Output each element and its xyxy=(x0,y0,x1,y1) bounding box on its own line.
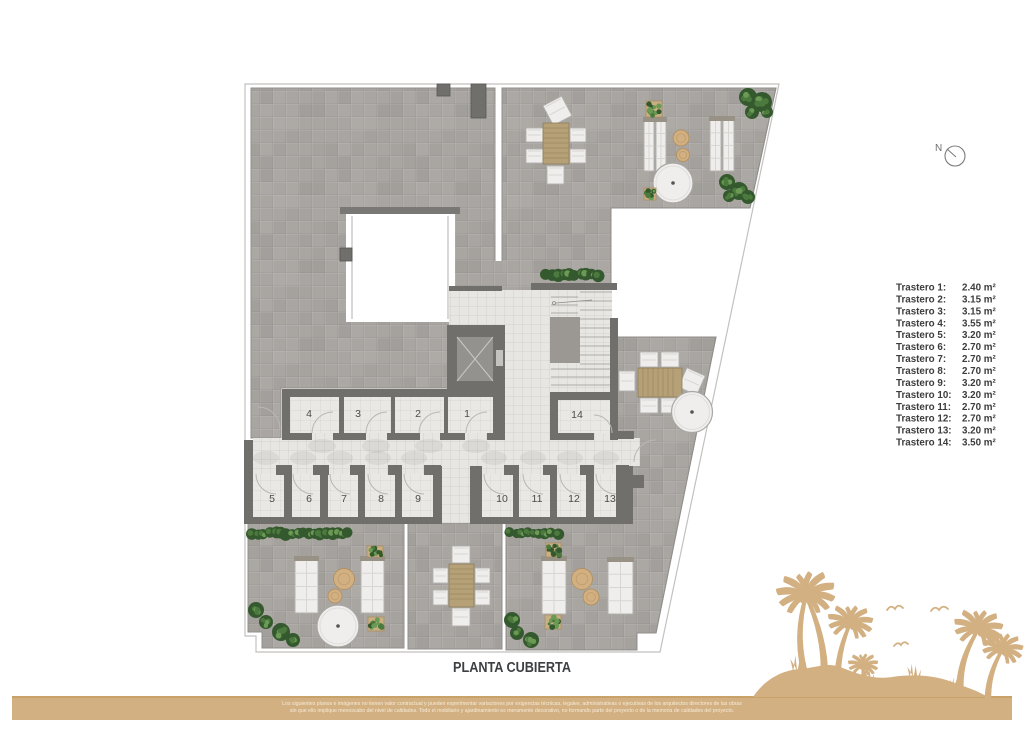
svg-text:PLANTA CUBIERTA: PLANTA CUBIERTA xyxy=(453,660,571,676)
svg-text:Trastero 13:: Trastero 13: xyxy=(896,426,952,437)
svg-text:2.40 m²: 2.40 m² xyxy=(962,283,997,294)
svg-text:Trastero 4:: Trastero 4: xyxy=(896,318,946,329)
svg-text:7: 7 xyxy=(341,493,347,505)
svg-text:3.15 m²: 3.15 m² xyxy=(962,294,997,305)
svg-text:Trastero 14:: Trastero 14: xyxy=(896,438,952,449)
svg-text:sin que ello implique menoscab: sin que ello implique menoscabo del nive… xyxy=(290,708,734,714)
svg-text:10: 10 xyxy=(496,493,508,505)
svg-text:9: 9 xyxy=(415,493,421,505)
svg-text:13: 13 xyxy=(604,493,616,505)
svg-text:3.20 m²: 3.20 m² xyxy=(962,390,997,401)
svg-text:3: 3 xyxy=(355,408,361,420)
svg-text:14: 14 xyxy=(571,409,583,421)
svg-text:Trastero 10:: Trastero 10: xyxy=(896,390,952,401)
svg-text:2.70 m²: 2.70 m² xyxy=(962,402,997,413)
svg-text:3.20 m²: 3.20 m² xyxy=(962,426,997,437)
svg-text:Trastero 2:: Trastero 2: xyxy=(896,294,946,305)
svg-text:4: 4 xyxy=(306,408,312,420)
svg-text:N: N xyxy=(935,143,942,154)
svg-text:11: 11 xyxy=(532,493,543,505)
svg-text:Trastero 7:: Trastero 7: xyxy=(896,354,946,365)
svg-text:2: 2 xyxy=(415,408,421,420)
svg-text:6: 6 xyxy=(306,493,312,505)
svg-text:Trastero 6:: Trastero 6: xyxy=(896,342,946,353)
svg-text:Trastero 1:: Trastero 1: xyxy=(896,283,946,294)
svg-text:1: 1 xyxy=(464,408,470,420)
svg-text:2.70 m²: 2.70 m² xyxy=(962,366,997,377)
svg-text:Los siguientes planos e imágen: Los siguientes planos e imágenes no tien… xyxy=(282,701,742,707)
svg-text:Trastero 12:: Trastero 12: xyxy=(896,414,952,425)
svg-text:Trastero 8:: Trastero 8: xyxy=(896,366,946,377)
svg-text:Trastero 5:: Trastero 5: xyxy=(896,330,946,341)
svg-text:12: 12 xyxy=(568,493,580,505)
svg-text:2.70 m²: 2.70 m² xyxy=(962,342,997,353)
svg-text:3.55 m²: 3.55 m² xyxy=(962,318,997,329)
svg-text:2.70 m²: 2.70 m² xyxy=(962,414,997,425)
svg-text:3.15 m²: 3.15 m² xyxy=(962,306,997,317)
svg-text:Trastero 11:: Trastero 11: xyxy=(896,402,951,413)
svg-text:8: 8 xyxy=(378,493,384,505)
svg-text:Trastero 9:: Trastero 9: xyxy=(896,378,946,389)
svg-text:3.20 m²: 3.20 m² xyxy=(962,378,997,389)
svg-text:2.70 m²: 2.70 m² xyxy=(962,354,997,365)
svg-text:3.20 m²: 3.20 m² xyxy=(962,330,997,341)
svg-text:5: 5 xyxy=(269,493,275,505)
svg-text:3.50 m²: 3.50 m² xyxy=(962,438,997,449)
svg-text:Trastero 3:: Trastero 3: xyxy=(896,306,946,317)
